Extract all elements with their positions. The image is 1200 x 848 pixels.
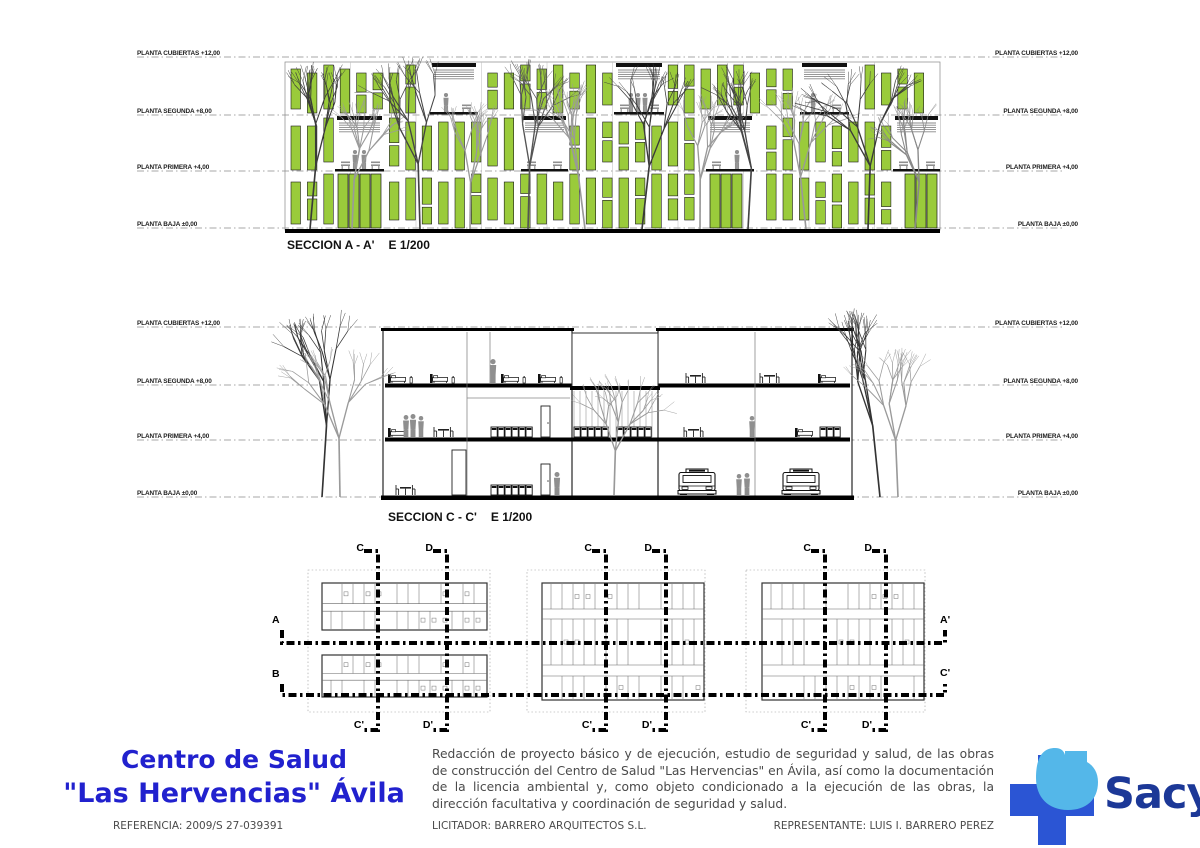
level-label: PLANTA BAJA ±0,00 — [137, 221, 197, 228]
level-label: PLANTA CUBIERTAS +12,00 — [137, 50, 220, 57]
level-label: PLANTA SEGUNDA +8,00 — [137, 378, 212, 385]
cut-label-d-prime: D' — [852, 720, 872, 731]
cut-label-c-prime-right: C' — [940, 668, 950, 679]
level-label: PLANTA BAJA ±0,00 — [1018, 490, 1078, 497]
section-a-title: SECCION A - A'E 1/200 — [287, 239, 430, 252]
cut-label-c-prime: C' — [791, 720, 811, 731]
cut-label-c-prime: C' — [572, 720, 592, 731]
section-c-name: SECCION C - C' — [388, 510, 477, 524]
cut-label-a: A — [272, 615, 280, 626]
project-description: Redacción de proyecto básico y de ejecuc… — [432, 746, 994, 812]
sacyl-logo-text: Sacyl — [1104, 769, 1200, 819]
level-label: PLANTA PRIMERA +4,00 — [1006, 433, 1078, 440]
sacyl-logo-mark — [1010, 748, 1098, 845]
section-c-title: SECCION C - C'E 1/200 — [388, 511, 532, 524]
cut-label-b: B — [272, 669, 280, 680]
level-label: PLANTA SEGUNDA +8,00 — [137, 108, 212, 115]
section-c-scale: E 1/200 — [491, 510, 532, 524]
cut-label-c: C — [795, 543, 811, 554]
level-label: PLANTA PRIMERA +4,00 — [137, 433, 209, 440]
floor-plans-drawing — [282, 551, 945, 730]
licitador-text: LICITADOR: BARRERO ARQUITECTOS S.L. — [432, 820, 647, 832]
reference-text: REFERENCIA: 2009/S 27-039391 — [113, 820, 283, 832]
cut-label-d-prime: D' — [632, 720, 652, 731]
representante-text: REPRESENTANTE: LUIS I. BARRERO PEREZ — [700, 820, 994, 832]
project-title-line1: Centro de Salud — [38, 744, 430, 776]
level-label: PLANTA SEGUNDA +8,00 — [1003, 378, 1078, 385]
level-label: PLANTA CUBIERTAS +12,00 — [137, 320, 220, 327]
level-label: PLANTA CUBIERTAS +12,00 — [995, 320, 1078, 327]
level-label: PLANTA PRIMERA +4,00 — [1006, 164, 1078, 171]
cut-label-c-prime: C' — [344, 720, 364, 731]
project-title: Centro de Salud "Las Hervencias" Ávila — [38, 744, 430, 812]
cut-label-d: D — [636, 543, 652, 554]
cut-label-d: D — [856, 543, 872, 554]
cut-label-c: C — [348, 543, 364, 554]
section-c-drawing — [271, 308, 930, 500]
drawing-sheet: PLANTA CUBIERTAS +12,00 PLANTA SEGUNDA +… — [0, 0, 1200, 848]
cut-label-d: D — [417, 543, 433, 554]
cut-label-c: C — [576, 543, 592, 554]
cut-label-a-prime: A' — [940, 615, 950, 626]
level-label: PLANTA PRIMERA +4,00 — [137, 164, 209, 171]
level-label: PLANTA BAJA ±0,00 — [1018, 221, 1078, 228]
section-a-scale: E 1/200 — [389, 238, 430, 252]
cut-label-d-prime: D' — [413, 720, 433, 731]
level-label: PLANTA BAJA ±0,00 — [137, 490, 197, 497]
project-title-line2: "Las Hervencias" Ávila — [38, 776, 430, 812]
section-a-name: SECCION A - A' — [287, 238, 375, 252]
cad-drawing — [0, 0, 1200, 848]
level-label: PLANTA CUBIERTAS +12,00 — [995, 50, 1078, 57]
level-label: PLANTA SEGUNDA +8,00 — [1003, 108, 1078, 115]
